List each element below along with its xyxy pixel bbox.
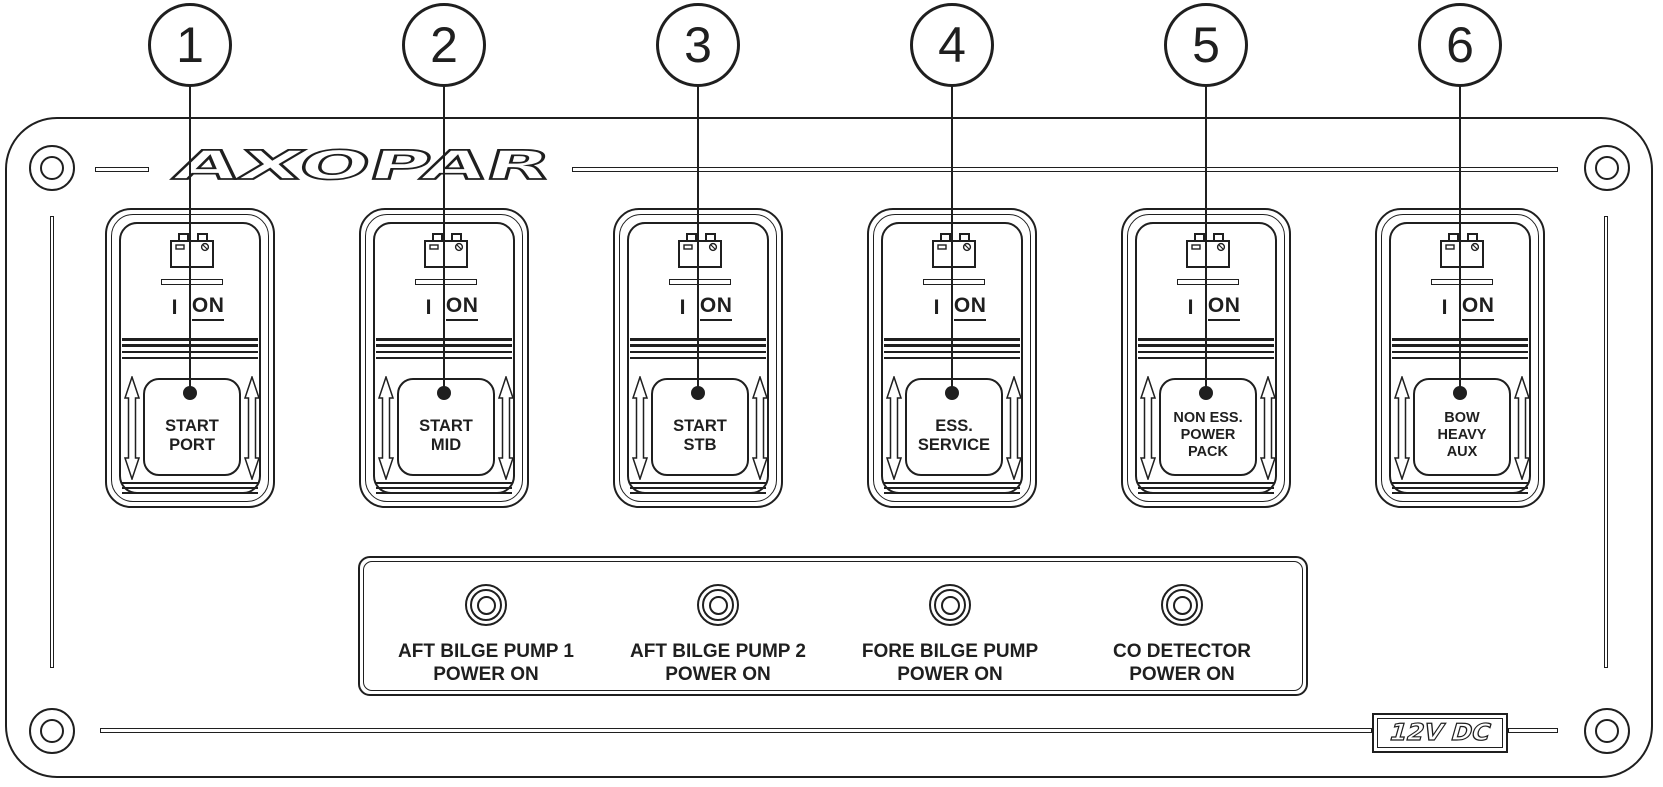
arrow-up-down-icon <box>124 376 140 480</box>
leader-dot <box>1453 386 1467 400</box>
position-on-label: ON <box>446 295 479 320</box>
callout-circle-1: 1 <box>148 3 232 87</box>
position-i-label: I <box>1188 296 1194 320</box>
arrow-up-down-icon <box>1260 376 1276 480</box>
callout-number: 6 <box>1446 16 1474 74</box>
switch-slot <box>415 279 477 285</box>
position-i-label: I <box>680 296 686 320</box>
arrow-up-down-icon <box>886 376 902 480</box>
battery-icon <box>1184 230 1232 270</box>
switch-position-labels: I ON <box>1131 294 1297 322</box>
callout-circle-6: 6 <box>1418 3 1502 87</box>
battery-icon <box>168 230 216 270</box>
switch-label: BOW HEAVY AUX <box>1416 400 1508 471</box>
led-indicator <box>465 584 507 626</box>
arrow-up-down-icon <box>1140 376 1156 480</box>
switch-position-labels: I ON <box>877 294 1043 322</box>
leader-dot <box>945 386 959 400</box>
led-indicator <box>1161 584 1203 626</box>
indicator-label: AFT BILGE PUMP 1 POWER ON <box>366 640 606 686</box>
position-on-label: ON <box>1462 295 1495 320</box>
leader-line <box>1205 86 1207 394</box>
leader-dot <box>1199 386 1213 400</box>
screw-hole-icon <box>1595 156 1619 180</box>
leader-line <box>951 86 953 394</box>
callout-circle-4: 4 <box>910 3 994 87</box>
switch-position-labels: I ON <box>623 294 789 322</box>
arrow-up-down-icon <box>1514 376 1530 480</box>
indicator-panel: AFT BILGE PUMP 1 POWER ON AFT BILGE PUMP… <box>358 556 1308 696</box>
position-i-label: I <box>1442 296 1448 320</box>
callout-number: 5 <box>1192 16 1220 74</box>
callout-number: 4 <box>938 16 966 74</box>
switch-position-labels: I ON <box>369 294 535 322</box>
position-i-label: I <box>172 296 178 320</box>
arrow-up-down-icon <box>632 376 648 480</box>
leader-line <box>189 86 191 394</box>
voltage-badge-inner: 12V DC <box>1377 718 1503 748</box>
arrow-up-down-icon <box>1394 376 1410 480</box>
screw-icon <box>29 708 75 754</box>
leader-line <box>697 86 699 394</box>
switch-label: ESS. SERVICE <box>908 400 1000 471</box>
brand-logo: AXOPAR <box>158 142 566 190</box>
battery-icon <box>1438 230 1486 270</box>
switch-slot <box>161 279 223 285</box>
arrow-up-down-icon <box>244 376 260 480</box>
position-on-label: ON <box>954 295 987 320</box>
screw-hole-icon <box>40 156 64 180</box>
trim-line-top <box>572 167 1558 172</box>
leader-line <box>1459 86 1461 394</box>
switch-slot <box>923 279 985 285</box>
arrow-up-down-icon <box>378 376 394 480</box>
leader-line <box>443 86 445 394</box>
led-indicator <box>929 584 971 626</box>
trim-line-left <box>50 216 54 668</box>
switch-label: NON ESS. POWER PACK <box>1162 400 1254 471</box>
switch-slot <box>1177 279 1239 285</box>
battery-icon <box>422 230 470 270</box>
led-indicator <box>697 584 739 626</box>
battery-icon <box>930 230 978 270</box>
leader-dot <box>437 386 451 400</box>
callout-circle-2: 2 <box>402 3 486 87</box>
position-on-label: ON <box>192 295 225 320</box>
screw-hole-icon <box>1595 719 1619 743</box>
callout-number: 3 <box>684 16 712 74</box>
arrow-up-down-icon <box>1006 376 1022 480</box>
leader-dot <box>691 386 705 400</box>
callout-number: 2 <box>430 16 458 74</box>
switch-slot <box>669 279 731 285</box>
battery-icon <box>676 230 724 270</box>
switch-position-labels: I ON <box>1385 294 1551 322</box>
switch-label: START STB <box>654 400 746 471</box>
callout-circle-5: 5 <box>1164 3 1248 87</box>
switch-position-labels: I ON <box>115 294 281 322</box>
arrow-up-down-icon <box>752 376 768 480</box>
indicator-label: CO DETECTOR POWER ON <box>1062 640 1302 686</box>
screw-icon <box>1584 708 1630 754</box>
leader-dot <box>183 386 197 400</box>
switch-label: START MID <box>400 400 492 471</box>
switch-label: START PORT <box>146 400 238 471</box>
indicator-label: AFT BILGE PUMP 2 POWER ON <box>598 640 838 686</box>
switch-panel-diagram: AXOPAR 1 2 3 4 5 6 I ON <box>0 0 1663 787</box>
callout-circle-3: 3 <box>656 3 740 87</box>
arrow-up-down-icon <box>498 376 514 480</box>
trim-line-bottom <box>100 728 1372 733</box>
position-i-label: I <box>934 296 940 320</box>
position-on-label: ON <box>1208 295 1241 320</box>
position-i-label: I <box>426 296 432 320</box>
voltage-badge-text: 12V DC <box>1386 719 1494 746</box>
trim-dash <box>95 167 149 172</box>
switch-slot <box>1431 279 1493 285</box>
brand-logo-text: AXOPAR <box>169 142 557 189</box>
screw-icon <box>29 145 75 191</box>
position-on-label: ON <box>700 295 733 320</box>
voltage-badge: 12V DC <box>1372 713 1508 753</box>
trim-line-bottom-right <box>1508 728 1558 733</box>
screw-icon <box>1584 145 1630 191</box>
indicator-label: FORE BILGE PUMP POWER ON <box>830 640 1070 686</box>
trim-line-right <box>1604 216 1608 668</box>
callout-number: 1 <box>176 16 204 74</box>
screw-hole-icon <box>40 719 64 743</box>
